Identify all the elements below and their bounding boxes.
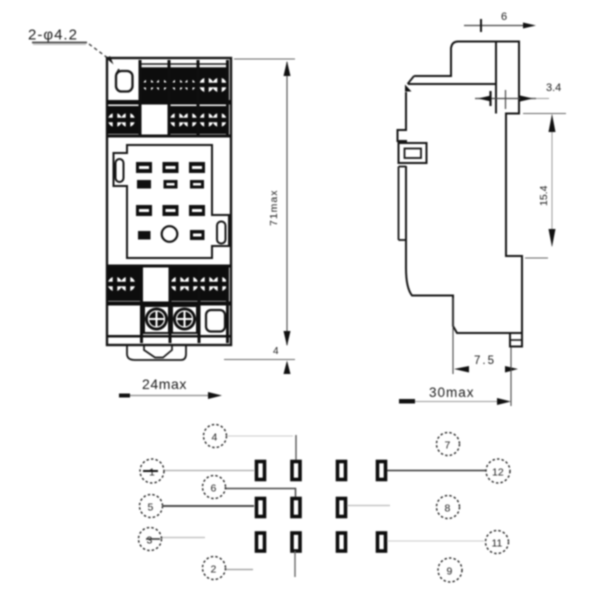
svg-text:7: 7 xyxy=(445,440,451,452)
svg-text:4: 4 xyxy=(273,346,279,357)
svg-text:24max: 24max xyxy=(142,376,187,392)
svg-text:11: 11 xyxy=(492,538,503,550)
svg-text:1: 1 xyxy=(149,467,155,479)
svg-text:4: 4 xyxy=(212,432,218,444)
svg-text:12: 12 xyxy=(492,467,504,479)
svg-text:2: 2 xyxy=(211,564,217,576)
svg-text:3.4: 3.4 xyxy=(546,82,561,94)
svg-text:30max: 30max xyxy=(429,385,475,400)
svg-text:3: 3 xyxy=(147,535,153,547)
svg-text:6: 6 xyxy=(211,483,217,495)
svg-text:8: 8 xyxy=(445,503,451,515)
svg-text:15.4: 15.4 xyxy=(538,185,550,206)
svg-text:2-φ4.2: 2-φ4.2 xyxy=(28,27,78,44)
svg-text:6: 6 xyxy=(501,11,507,23)
svg-text:9: 9 xyxy=(447,566,453,578)
svg-text:5: 5 xyxy=(148,502,154,514)
svg-text:71max: 71max xyxy=(268,189,280,226)
svg-text:7.5: 7.5 xyxy=(474,355,496,367)
